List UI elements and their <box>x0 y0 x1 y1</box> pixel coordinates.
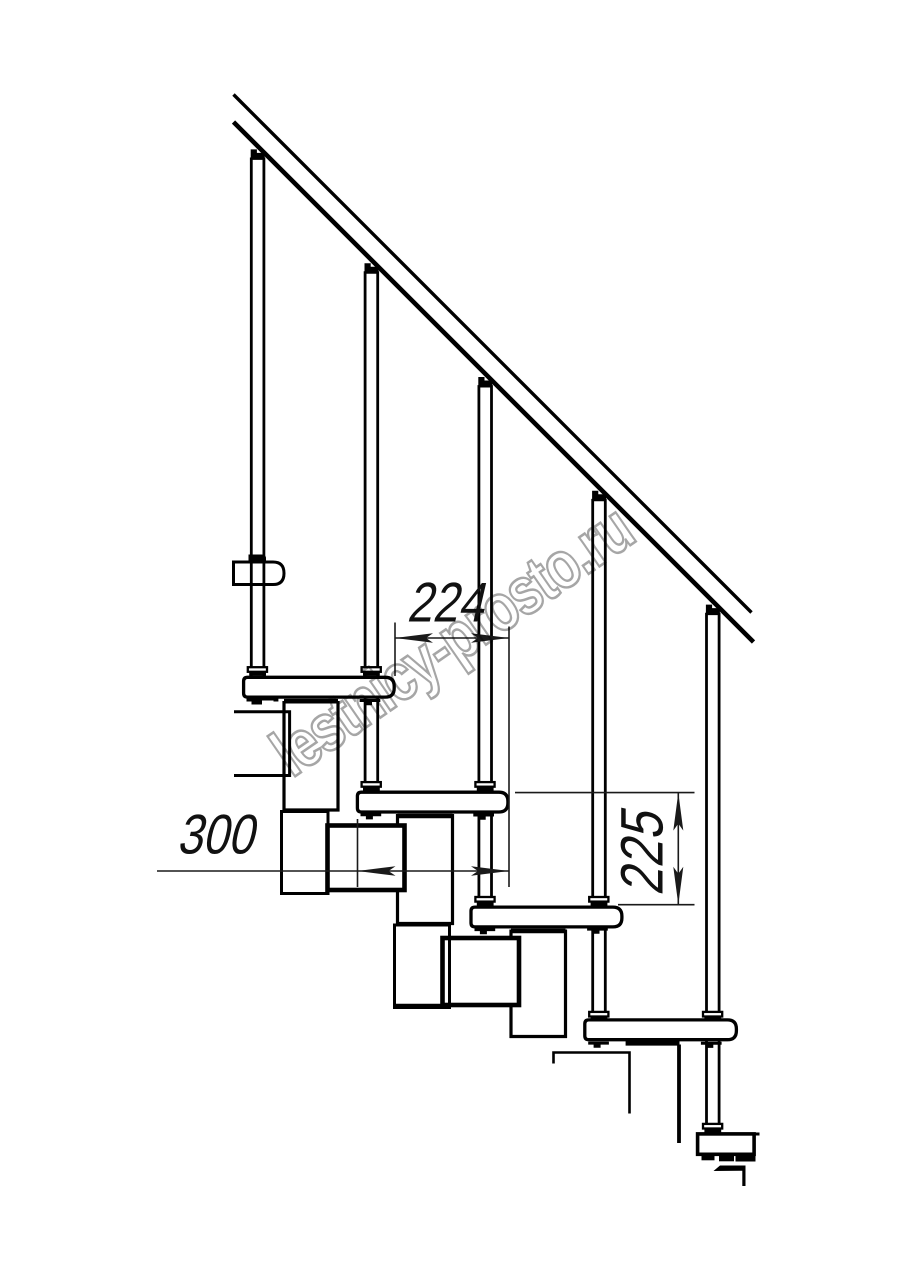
svg-text:300: 300 <box>174 804 265 866</box>
svg-text:225: 225 <box>609 800 676 899</box>
